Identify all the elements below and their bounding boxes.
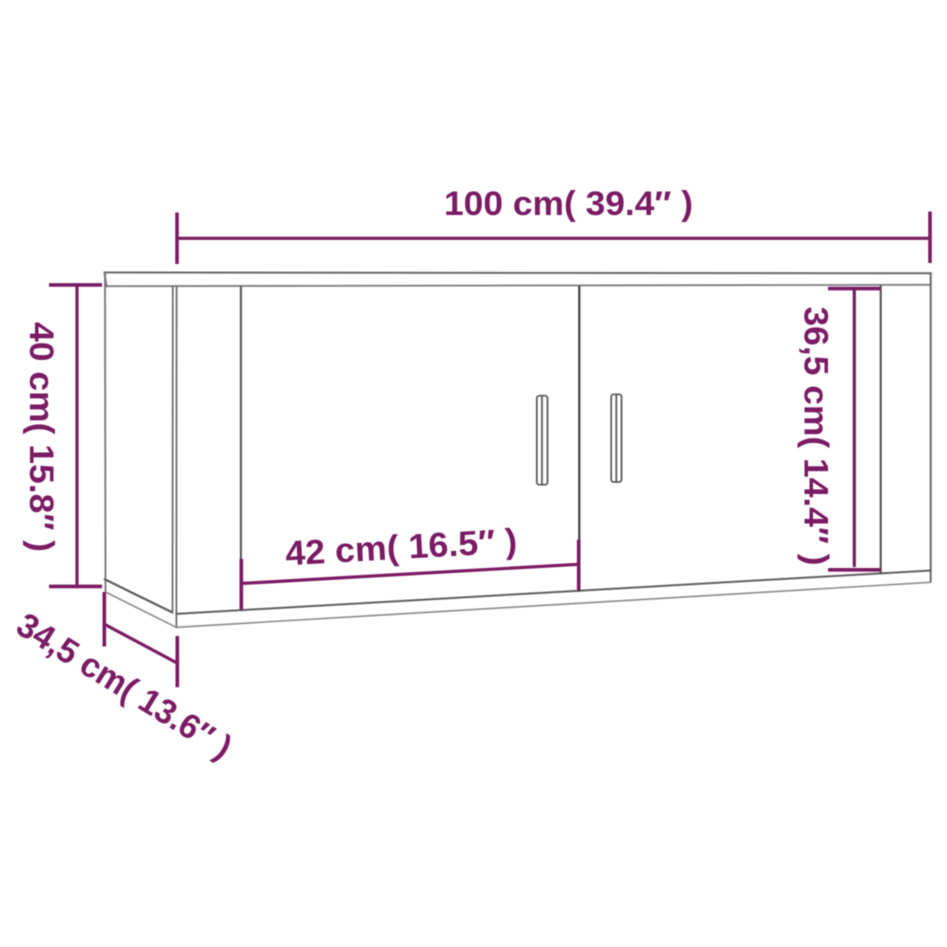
svg-text:40 cm( 15.8″ ): 40 cm( 15.8″ ) xyxy=(22,322,60,552)
svg-text:100 cm( 39.4″ ): 100 cm( 39.4″ ) xyxy=(444,185,693,223)
svg-text:36,5 cm( 14.4″ ): 36,5 cm( 14.4″ ) xyxy=(797,307,835,566)
